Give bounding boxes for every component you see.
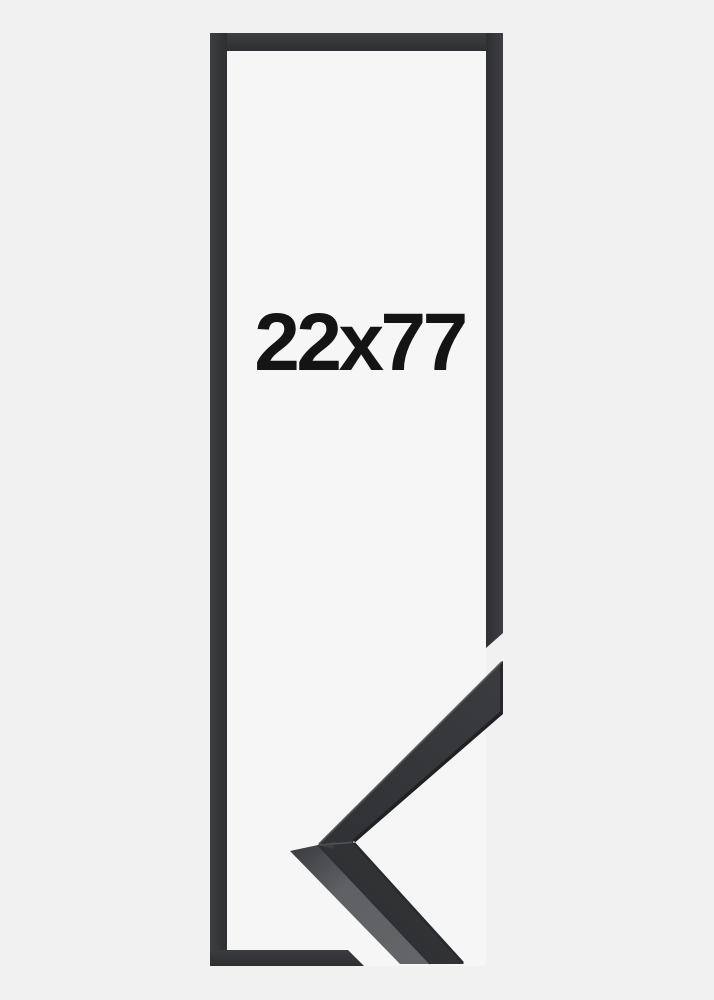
frame-size-label: 22x77 [227, 309, 489, 377]
frame-left-bar [210, 33, 227, 966]
frame-top-bar [210, 33, 503, 51]
frame-opening [227, 51, 486, 966]
frame-product-photo: 22x77 [0, 0, 714, 1000]
frame-bottom-bar-mitred [210, 950, 364, 966]
corner-sample-cut-face [500, 661, 503, 716]
